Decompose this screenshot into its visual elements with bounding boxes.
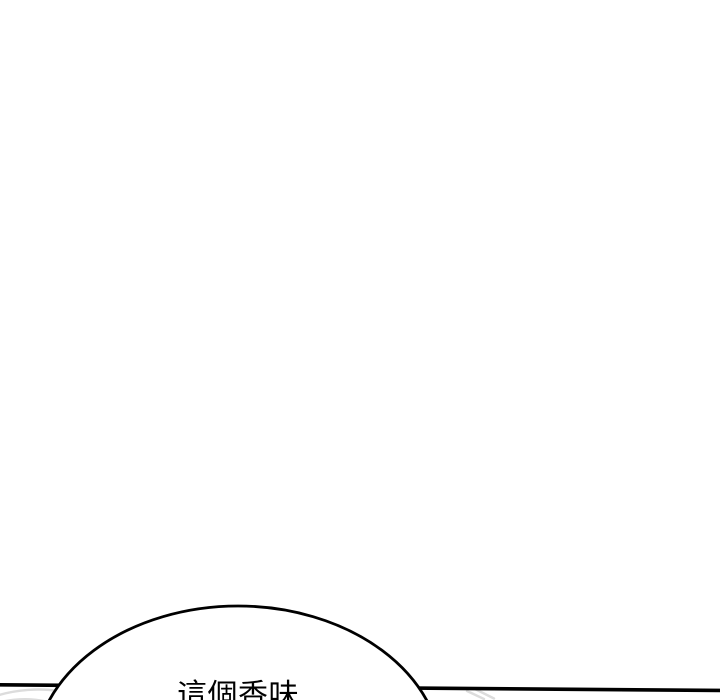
speech-bubble-text: 這個香味 <box>0 679 476 700</box>
panel-artwork <box>0 0 720 700</box>
comic-page: 這個香味 <box>0 0 720 700</box>
